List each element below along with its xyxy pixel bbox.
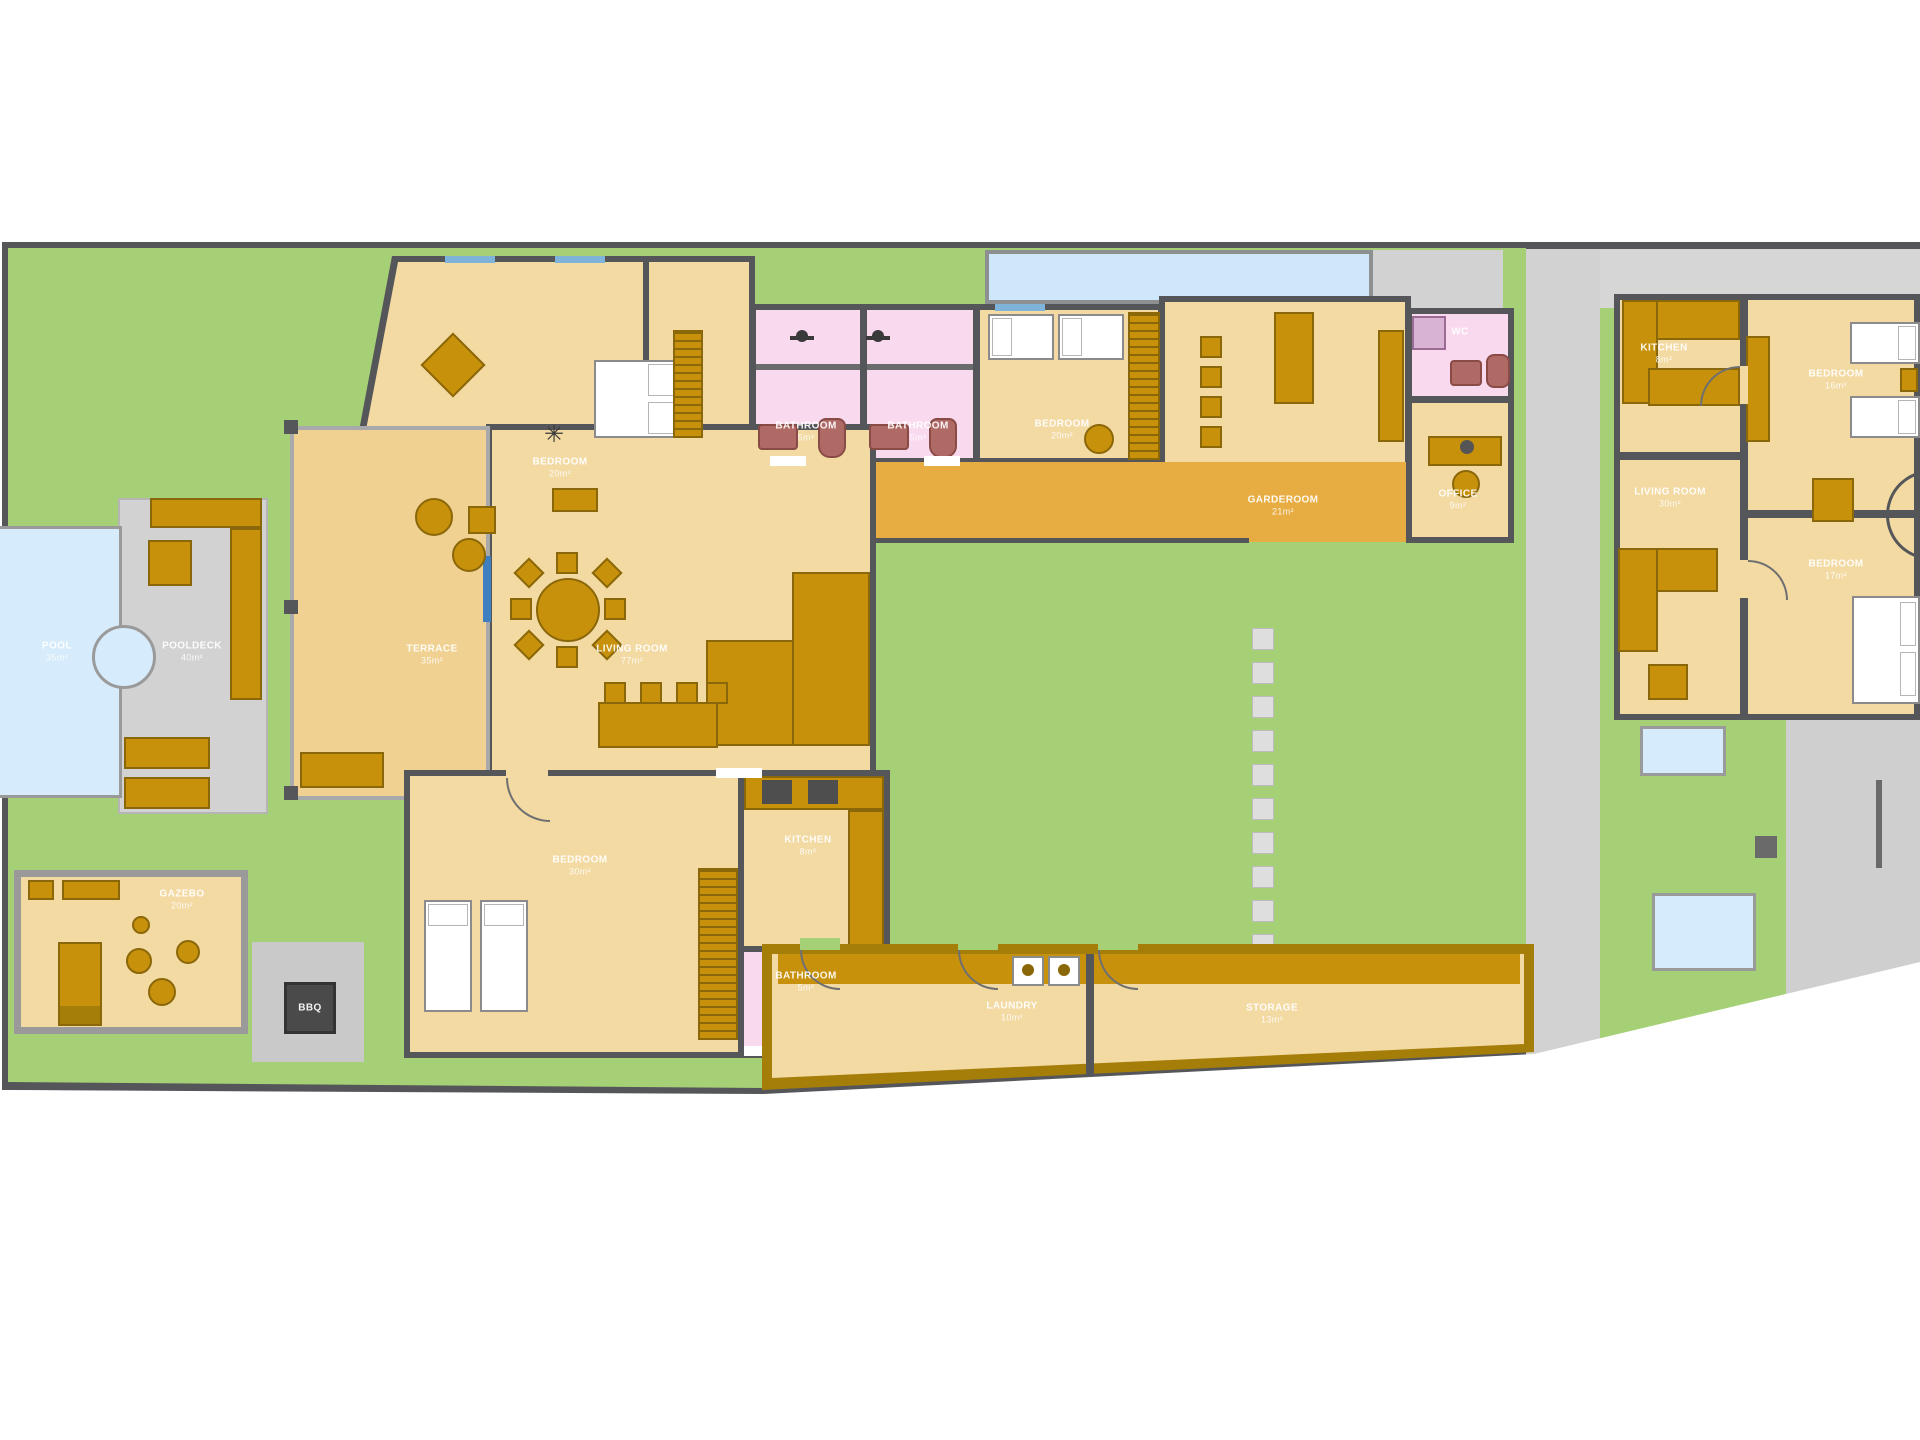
pillow (1900, 602, 1916, 646)
window (555, 256, 605, 263)
pergola-post (284, 786, 298, 800)
washer-door-icon (1058, 964, 1070, 976)
dining-chair (604, 598, 626, 620)
stepping-stone (1252, 730, 1274, 752)
wardrobe (673, 330, 703, 438)
sink (1450, 360, 1482, 386)
toilet (818, 418, 846, 458)
shower-tray (1412, 316, 1446, 350)
lounger (62, 880, 120, 900)
bar-stool (706, 682, 728, 704)
dining-chair (556, 552, 578, 574)
kitchen-sink (808, 780, 838, 804)
shower-icon (790, 336, 814, 340)
kitchen-counter (848, 810, 884, 946)
terrace-bench (300, 752, 384, 788)
bbq-unit (284, 982, 336, 1034)
coffee-table (1648, 664, 1688, 700)
window (445, 256, 495, 263)
toilet (1486, 354, 1510, 388)
stepping-stone (1252, 696, 1274, 718)
storage-island (1274, 312, 1314, 404)
ceiling-fan-icon: ✳ (544, 420, 564, 449)
toilet (929, 418, 957, 458)
courtyard (869, 543, 1249, 805)
plunge-pool-2 (1652, 893, 1756, 971)
pouf (126, 948, 152, 974)
water-feature (483, 556, 491, 622)
chair (1084, 424, 1114, 454)
side-table (28, 880, 54, 900)
lounge-chair (415, 498, 453, 536)
sink (869, 424, 909, 450)
daybed-end (60, 1006, 100, 1024)
plunge-pool-1 (1640, 726, 1726, 776)
bar-stool (604, 682, 626, 704)
dining-chair (556, 646, 578, 668)
pouf (176, 940, 200, 964)
pool-steps (92, 625, 156, 689)
nightstand (1900, 368, 1918, 392)
stepping-stone (1252, 662, 1274, 684)
sun-lounger (124, 777, 210, 809)
door-opening (958, 938, 998, 950)
counter-shelf (778, 954, 1520, 984)
stepping-stone (1252, 866, 1274, 888)
strip-divider-wall (1086, 954, 1094, 1074)
pillow (992, 318, 1012, 356)
pillow (648, 402, 674, 434)
sun-lounger (150, 498, 262, 528)
door-opening (770, 456, 806, 466)
stove (762, 780, 792, 804)
desk-plant (1460, 440, 1474, 454)
window-opening (716, 768, 762, 778)
washer-door-icon (1022, 964, 1034, 976)
wardrobe (1128, 312, 1160, 460)
stepping-stone (1252, 764, 1274, 786)
hall-closet (1746, 336, 1770, 442)
sun-lounger (124, 737, 210, 769)
sofa (792, 572, 870, 746)
door-opening (800, 938, 840, 950)
sink (758, 424, 798, 450)
pillow (648, 364, 674, 396)
guest-cross-wall-left (1614, 452, 1748, 460)
stepping-stone (1252, 798, 1274, 820)
shelf (1200, 336, 1222, 358)
pillow (1900, 652, 1916, 696)
hall-table (1812, 478, 1854, 522)
orange-deck (869, 462, 1406, 542)
cabinet (1378, 330, 1404, 442)
pillow (1062, 318, 1082, 356)
floor-plan: ✳ (0, 0, 1920, 1440)
driveway-strip (1526, 242, 1600, 1057)
pillow (1898, 326, 1916, 360)
kitchen-island (598, 702, 718, 748)
property-top-line (1526, 242, 1920, 249)
pouf (148, 978, 176, 1006)
lounge-chair (452, 538, 486, 572)
sofa (1618, 548, 1658, 652)
door-opening (1098, 938, 1138, 950)
shower-partition (756, 364, 860, 370)
stepping-stone (1252, 900, 1274, 922)
stepping-stone (1252, 628, 1274, 650)
door-opening (924, 456, 960, 466)
terrace-room (290, 426, 490, 800)
shower-partition (867, 364, 973, 370)
sun-lounger (230, 528, 262, 700)
door-opening (506, 766, 548, 778)
bar-stool (676, 682, 698, 704)
deck-table (148, 540, 192, 586)
shower-icon (866, 336, 890, 340)
dining-table (536, 578, 600, 642)
office-chair (1452, 470, 1480, 498)
door-opening (1740, 366, 1748, 404)
fence-line (1876, 780, 1882, 868)
side-table (468, 506, 496, 534)
shelf (1200, 396, 1222, 418)
pillow (484, 904, 524, 926)
shelf (1200, 366, 1222, 388)
wardrobe (698, 868, 738, 1040)
stepping-stone (1252, 832, 1274, 854)
pergola-post (284, 600, 298, 614)
shelf (1200, 426, 1222, 448)
pillow (1898, 400, 1916, 434)
pouf (132, 916, 150, 934)
utility-box (1755, 836, 1777, 858)
dining-chair (510, 598, 532, 620)
bar-stool (640, 682, 662, 704)
sideboard (552, 488, 598, 512)
door-opening (1740, 560, 1748, 598)
pergola-post (284, 420, 298, 434)
pillow (428, 904, 468, 926)
window (995, 304, 1045, 311)
